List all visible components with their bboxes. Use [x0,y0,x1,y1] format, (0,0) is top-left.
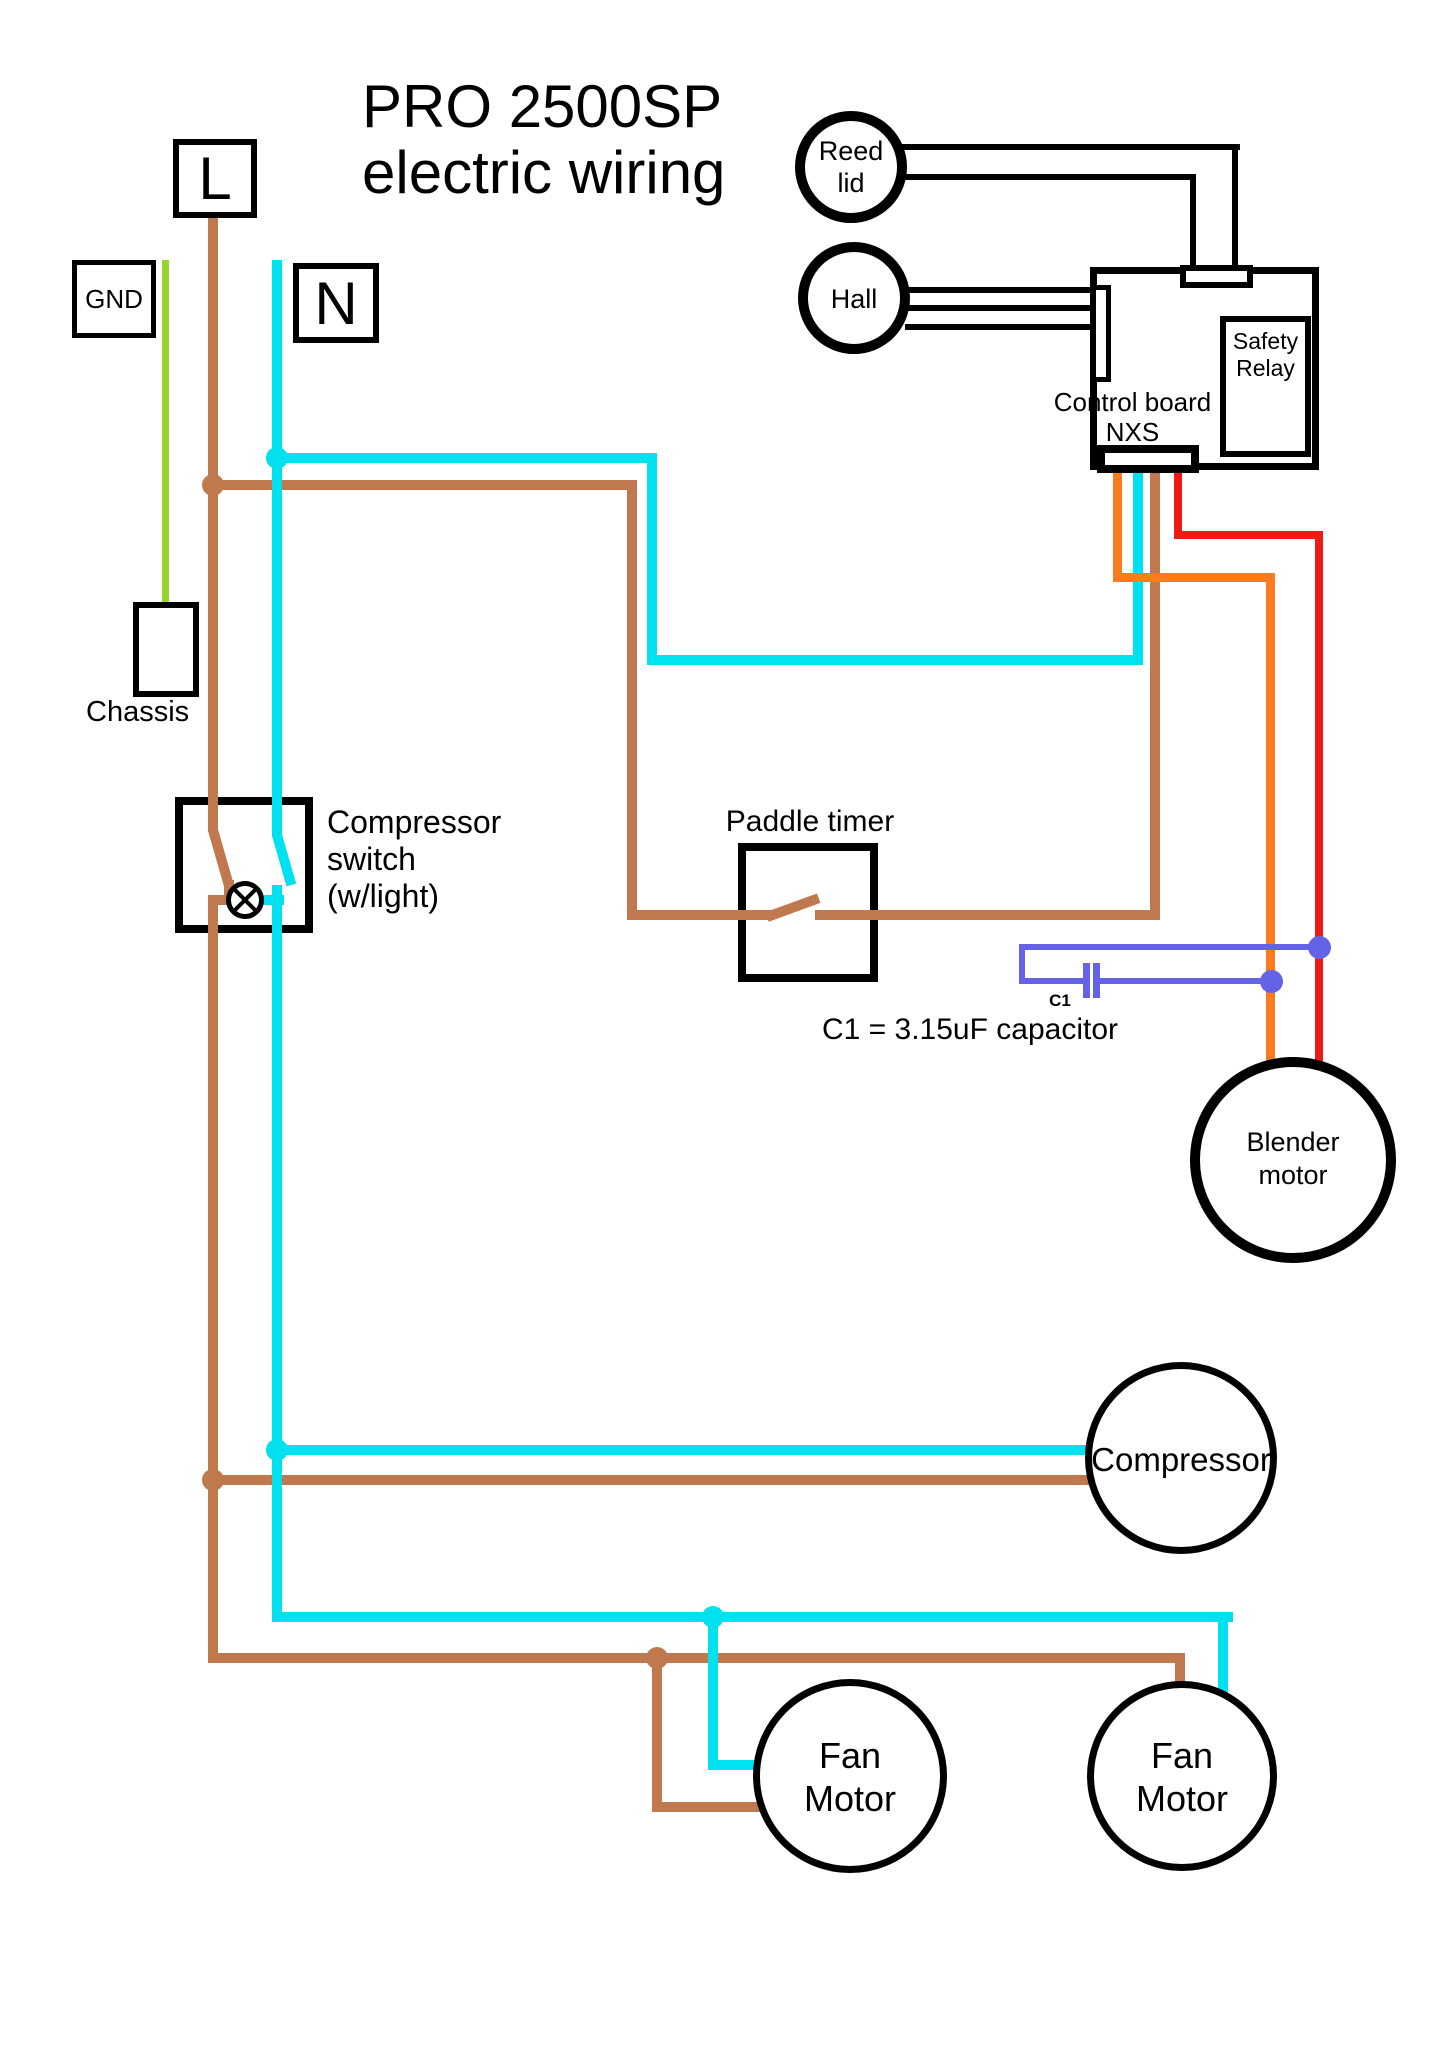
wire-orange-h [1113,573,1275,582]
wire-neutral-bottom-h [272,1612,1233,1622]
junction-neutral-top [266,447,288,469]
wire-live-paddle-out [815,910,1160,920]
wire-neutral-mid-h [647,655,1143,665]
control-board-bottom-connector [1097,445,1199,473]
wire-live-l-drop [208,218,218,832]
junction-live-top [202,474,224,496]
wire-red-board-drop [1174,468,1182,539]
lamp-icon [223,878,267,922]
wiring-diagram: L GND N [0,0,1448,2048]
wire-neutral-compressor-h [277,1445,1100,1455]
wire-orange-board-drop [1113,468,1122,582]
junction-capacitor-orange [1260,970,1283,993]
wire-live-compressor-h [213,1475,1100,1485]
wire-reed-1-horizontal [900,144,1240,150]
wire-neutral-n-drop [272,260,282,837]
wire-neutral-branch-v [647,453,657,665]
wire-red-to-blender [1315,531,1323,1080]
wire-red-h [1174,531,1323,539]
capacitor-caption: C1 = 3.15uF capacitor [822,1013,1118,1048]
page-title: PRO 2500SP electric wiring [362,74,725,206]
paddle-timer-label: Paddle timer [715,805,905,840]
page-title-line2: electric wiring [362,140,725,206]
reed-lid-label: Reed lid [795,135,907,199]
wire-neutral-branch-top-h [277,453,657,463]
terminal-neutral-label: N [314,269,357,338]
chassis-box [133,602,199,697]
wire-reed-2-horizontal [900,174,1196,180]
terminal-live-label: L [198,144,231,213]
capacitor-plate-right [1093,963,1100,998]
terminal-box-ground: GND [72,260,156,338]
wire-neutral-main-drop [272,885,282,1622]
wire-hall-3 [905,324,1095,330]
wire-ground-vertical [162,260,169,602]
capacitor-plate-left [1083,963,1090,998]
junction-capacitor-red [1308,936,1331,959]
junction-neutral-fan [702,1606,724,1628]
junction-live-compressor [202,1469,224,1491]
control-board-top-connector [1180,265,1253,288]
wire-orange-to-blender [1266,573,1275,1080]
terminal-ground-label: GND [85,284,143,315]
wire-capacitor-top-h [1022,944,1320,950]
fan-motor-right-label: Fan Motor [1087,1734,1277,1820]
wire-live-bottom-h [208,1653,1185,1663]
wire-neutral-to-board [1133,468,1143,665]
fan-motor-left-label: Fan Motor [753,1734,947,1820]
page-title-line1: PRO 2500SP [362,74,725,140]
chassis-label: Chassis [86,696,189,729]
junction-neutral-compressor [266,1439,288,1461]
wire-neutral-fan-left-drop [708,1617,718,1770]
wire-capacitor-bottom-h2 [1100,978,1271,984]
wire-live-branch-v [627,480,637,920]
wire-live-to-board [1150,468,1160,920]
control-board-label: Control board NXS [1030,387,1235,447]
wire-hall-2 [905,305,1095,311]
compressor-label: Compressor [1085,1441,1277,1479]
terminal-box-live: L [173,139,257,218]
wire-live-fan-left-drop [652,1658,662,1812]
wire-live-main-drop [208,895,218,1663]
compressor-switch-label: Compressor switch (w/light) [327,804,501,915]
terminal-box-neutral: N [293,263,379,343]
wire-reed-1-vertical [1232,144,1238,270]
wire-live-paddle-in [632,910,772,920]
capacitor-designator: C1 [1040,991,1080,1011]
control-board-left-connector [1091,285,1111,382]
safety-relay-label: Safety Relay [1220,328,1311,382]
wire-capacitor-bottom-h1 [1019,978,1085,984]
wire-reed-2-vertical [1190,174,1196,270]
hall-label: Hall [798,284,910,315]
wire-hall-1 [905,287,1095,293]
junction-live-fan [646,1647,668,1669]
blender-motor-label: Blender motor [1190,1126,1396,1192]
